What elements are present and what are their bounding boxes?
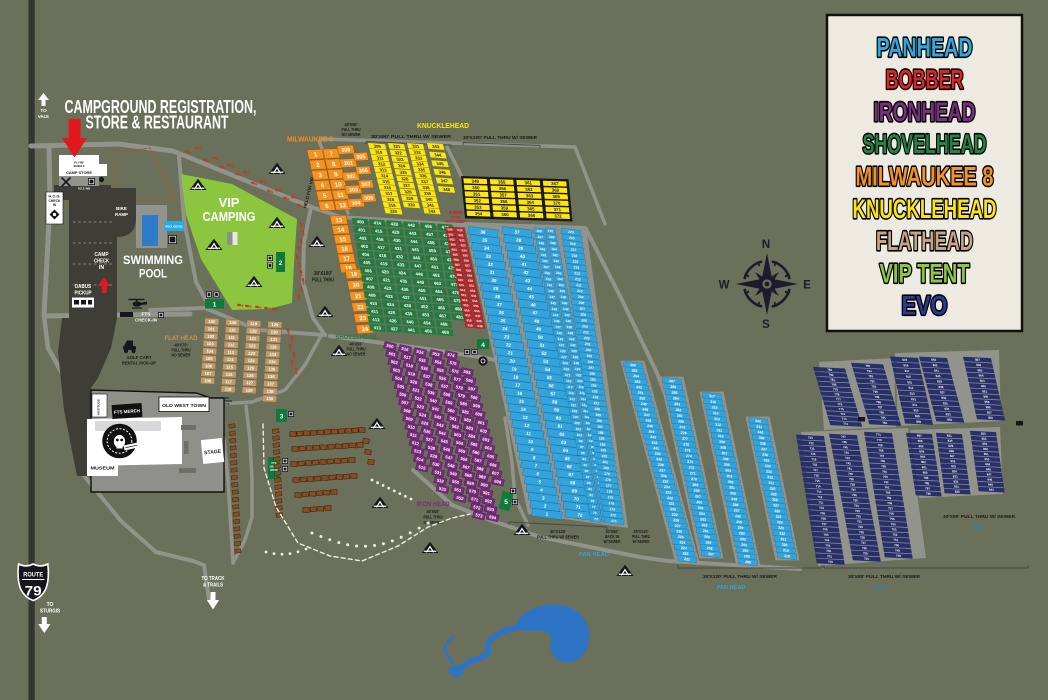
- svg-text:93: 93: [582, 457, 586, 461]
- svg-text:298: 298: [732, 503, 738, 508]
- svg-text:179: 179: [604, 472, 610, 477]
- svg-text:141: 141: [553, 313, 559, 318]
- svg-text:303: 303: [348, 187, 358, 193]
- svg-text:BIKE: BIKE: [116, 206, 128, 212]
- svg-text:327: 327: [773, 503, 779, 508]
- svg-text:POOLHOUSE: POOLHOUSE: [166, 225, 183, 229]
- svg-text:EVO: EVO: [902, 291, 948, 321]
- svg-text:CAMP: CAMP: [95, 252, 109, 258]
- svg-text:TO: TO: [40, 108, 47, 113]
- svg-text:PULL THRU: PULL THRU: [424, 515, 443, 520]
- svg-text:222: 222: [682, 551, 688, 556]
- svg-text:293: 293: [739, 531, 745, 536]
- svg-text:432: 432: [395, 254, 404, 259]
- svg-text:231: 231: [668, 502, 674, 507]
- svg-text:366: 366: [528, 213, 536, 218]
- svg-text:134: 134: [569, 337, 575, 342]
- svg-text:91: 91: [583, 463, 587, 467]
- svg-text:276: 276: [683, 442, 689, 447]
- svg-text:PAN HEAD: PAN HEAD: [717, 585, 746, 591]
- svg-text:320: 320: [781, 543, 787, 548]
- svg-text:VIP: VIP: [219, 196, 240, 210]
- svg-text:199: 199: [586, 354, 592, 359]
- svg-text:124: 124: [575, 367, 581, 372]
- svg-text:424: 424: [386, 302, 395, 307]
- svg-text:334: 334: [765, 464, 771, 469]
- svg-text:30'X120' PULL THRU W/ SEWER: 30'X120' PULL THRU W/ SEWER: [703, 574, 778, 579]
- svg-text:414: 414: [373, 220, 382, 225]
- svg-text:124: 124: [248, 358, 256, 363]
- svg-text:101: 101: [208, 326, 216, 331]
- svg-text:77: 77: [592, 505, 596, 509]
- svg-text:411: 411: [371, 309, 379, 314]
- svg-text:30'X80' PULL THRU W/ SEWER: 30'X80' PULL THRU W/ SEWER: [943, 514, 1016, 519]
- svg-text:207: 207: [579, 307, 585, 312]
- svg-text:127: 127: [561, 355, 567, 360]
- svg-text:RENTAL PICK-UP: RENTAL PICK-UP: [122, 361, 156, 366]
- svg-text:169: 169: [536, 229, 542, 234]
- svg-text:193: 193: [592, 389, 598, 394]
- svg-text:127: 127: [246, 380, 254, 385]
- svg-text:282: 282: [675, 408, 681, 413]
- svg-text:241: 241: [653, 446, 659, 451]
- svg-text:221: 221: [684, 557, 690, 562]
- svg-text:456: 456: [424, 224, 433, 229]
- svg-text:261: 261: [703, 529, 709, 534]
- svg-text:174: 174: [608, 501, 614, 506]
- svg-text:358: 358: [500, 199, 508, 204]
- svg-text:429: 429: [392, 230, 401, 235]
- svg-text:330: 330: [769, 487, 775, 492]
- svg-text:277: 277: [682, 437, 688, 442]
- svg-text:131: 131: [270, 337, 278, 342]
- svg-text:95: 95: [581, 451, 585, 455]
- svg-text:314: 314: [713, 411, 719, 416]
- svg-text:278: 278: [681, 431, 687, 436]
- svg-text:115: 115: [226, 364, 234, 369]
- svg-text:99: 99: [579, 439, 583, 443]
- svg-text:97: 97: [580, 445, 584, 449]
- svg-text:89: 89: [584, 469, 588, 473]
- svg-text:251: 251: [638, 391, 644, 396]
- svg-text:258: 258: [707, 546, 713, 551]
- svg-text:408: 408: [367, 284, 376, 289]
- svg-text:CHECK: CHECK: [94, 258, 109, 264]
- svg-text:121: 121: [249, 336, 257, 341]
- svg-text:3: 3: [280, 414, 284, 421]
- svg-text:79: 79: [25, 583, 42, 599]
- svg-text:122: 122: [249, 343, 257, 348]
- svg-text:218: 218: [570, 242, 576, 247]
- svg-text:419: 419: [380, 261, 389, 266]
- svg-text:245: 245: [647, 424, 653, 429]
- svg-text:111: 111: [228, 335, 236, 340]
- svg-text:317: 317: [709, 394, 715, 399]
- svg-text:105: 105: [206, 356, 214, 361]
- svg-text:301: 301: [343, 161, 353, 167]
- svg-text:OLD WEST TOWN: OLD WEST TOWN: [162, 403, 207, 408]
- svg-text:338: 338: [760, 442, 766, 447]
- svg-text:296: 296: [735, 514, 741, 519]
- svg-text:302: 302: [727, 480, 733, 485]
- svg-text:BOBBER: BOBBER: [449, 210, 463, 215]
- svg-text:223: 223: [681, 546, 687, 551]
- svg-text:125: 125: [247, 365, 255, 370]
- svg-text:400: 400: [356, 219, 365, 224]
- svg-text:MILWAUKEE 8: MILWAUKEE 8: [856, 162, 994, 192]
- svg-text:117: 117: [567, 385, 573, 390]
- svg-text:194: 194: [591, 383, 597, 388]
- svg-text:79: 79: [590, 499, 594, 503]
- svg-text:151: 151: [547, 283, 553, 288]
- svg-text:448: 448: [415, 271, 424, 276]
- svg-text:4: 4: [481, 342, 485, 349]
- svg-text:110: 110: [229, 327, 237, 332]
- svg-text:178: 178: [605, 478, 611, 483]
- svg-text:333: 333: [766, 470, 772, 475]
- svg-text:309: 309: [719, 440, 725, 445]
- svg-text:KNUCKLEHEAD: KNUCKLEHEAD: [853, 194, 997, 224]
- svg-text:291: 291: [741, 543, 747, 548]
- svg-text:CHECK-IN: CHECK-IN: [135, 318, 158, 324]
- svg-text:349: 349: [471, 179, 479, 184]
- svg-text:451: 451: [419, 296, 428, 301]
- svg-text:143: 143: [551, 307, 557, 312]
- svg-text:464: 464: [435, 289, 444, 294]
- svg-text:308: 308: [720, 446, 726, 451]
- svg-text:PICKUP: PICKUP: [75, 290, 92, 296]
- svg-text:132: 132: [570, 343, 576, 348]
- svg-text:109: 109: [229, 320, 237, 325]
- svg-text:E: E: [803, 280, 811, 292]
- svg-text:351: 351: [473, 192, 481, 197]
- svg-text:GOLF CART: GOLF CART: [127, 355, 152, 360]
- svg-text:PULL THRU W/ SEWER: PULL THRU W/ SEWER: [537, 535, 580, 540]
- svg-text:269: 269: [692, 483, 698, 488]
- svg-text:307: 307: [361, 182, 371, 188]
- svg-text:188: 188: [596, 419, 602, 424]
- svg-text:103: 103: [207, 341, 215, 346]
- svg-text:357: 357: [499, 192, 507, 197]
- svg-text:283: 283: [674, 402, 680, 407]
- svg-text:159: 159: [542, 259, 548, 264]
- svg-text:460: 460: [429, 256, 438, 261]
- svg-text:CAMPING: CAMPING: [203, 210, 256, 224]
- svg-text:1: 1: [213, 302, 217, 309]
- svg-text:342: 342: [755, 419, 761, 424]
- svg-text:259: 259: [705, 540, 711, 545]
- svg-text:274: 274: [686, 454, 692, 459]
- svg-text:263: 263: [700, 517, 706, 522]
- svg-text:108: 108: [204, 378, 212, 383]
- svg-text:224: 224: [679, 540, 685, 545]
- svg-text:364: 364: [526, 200, 534, 205]
- svg-text:ROUTE: ROUTE: [23, 573, 43, 579]
- svg-text:121: 121: [564, 373, 570, 378]
- svg-text:307: 307: [721, 451, 727, 456]
- svg-text:211: 211: [576, 283, 582, 288]
- svg-text:155: 155: [544, 271, 550, 276]
- svg-text:180: 180: [603, 466, 609, 471]
- svg-text:360: 360: [501, 212, 509, 217]
- svg-text:403: 403: [360, 244, 369, 249]
- svg-text:118: 118: [578, 385, 584, 390]
- svg-text:234: 234: [664, 485, 670, 490]
- svg-text:281: 281: [677, 414, 683, 419]
- svg-text:219: 219: [569, 236, 575, 241]
- svg-text:365: 365: [527, 206, 535, 211]
- svg-text:168: 168: [549, 235, 555, 240]
- svg-text:173: 173: [609, 507, 615, 512]
- svg-text:203: 203: [583, 330, 589, 335]
- svg-text:421: 421: [382, 277, 391, 282]
- svg-text:120: 120: [577, 379, 583, 384]
- svg-text:185: 185: [599, 436, 605, 441]
- svg-text:149: 149: [548, 289, 554, 294]
- svg-text:466: 466: [437, 305, 446, 310]
- svg-text:335: 335: [763, 458, 769, 463]
- svg-text:438: 438: [403, 303, 412, 308]
- svg-text:NO SEWER: NO SEWER: [342, 132, 361, 137]
- svg-text:254: 254: [633, 374, 639, 379]
- svg-text:STORE & RESTAURANT: STORE & RESTAURANT: [86, 113, 229, 133]
- svg-text:287: 287: [669, 379, 675, 384]
- svg-text:123: 123: [563, 367, 569, 372]
- svg-text:295: 295: [736, 520, 742, 525]
- svg-text:352: 352: [473, 198, 481, 203]
- svg-text:354: 354: [475, 211, 483, 216]
- svg-text:N: N: [762, 239, 770, 251]
- svg-text:TO TRACK: TO TRACK: [202, 576, 225, 582]
- svg-text:205: 205: [581, 318, 587, 323]
- svg-text:137: 137: [267, 381, 275, 386]
- svg-text:216: 216: [571, 253, 577, 258]
- svg-text:166: 166: [550, 241, 556, 246]
- svg-text:315: 315: [711, 405, 717, 410]
- svg-text:136: 136: [267, 374, 275, 379]
- svg-text:305: 305: [724, 463, 730, 468]
- svg-text:EVO: EVO: [973, 525, 984, 531]
- svg-text:KNUCKLEHEAD: KNUCKLEHEAD: [417, 121, 470, 130]
- svg-text:434: 434: [398, 270, 407, 275]
- svg-text:455: 455: [424, 328, 433, 333]
- svg-text:85: 85: [587, 481, 591, 485]
- svg-text:260: 260: [704, 535, 710, 540]
- svg-text:250: 250: [639, 396, 645, 401]
- svg-text:30'X80' PULL THRU W/ SEWER: 30'X80' PULL THRU W/ SEWER: [848, 574, 921, 579]
- svg-text:372: 372: [554, 214, 562, 219]
- svg-text:183: 183: [600, 448, 606, 453]
- svg-text:285: 285: [671, 391, 677, 396]
- svg-text:240: 240: [655, 452, 661, 457]
- svg-text:S: S: [762, 319, 770, 331]
- svg-text:435: 435: [399, 278, 408, 283]
- svg-text:208: 208: [578, 301, 584, 306]
- svg-text:83: 83: [588, 487, 592, 491]
- svg-text:172: 172: [610, 513, 616, 518]
- svg-text:319: 319: [783, 548, 789, 553]
- svg-text:BACK IN W/SEWER: BACK IN W/SEWER: [445, 220, 468, 224]
- svg-text:BOBBER: BOBBER: [886, 65, 964, 95]
- svg-text:73: 73: [594, 517, 598, 521]
- svg-text:325: 325: [775, 515, 781, 520]
- svg-text:167: 167: [537, 235, 543, 240]
- svg-text:115: 115: [568, 391, 574, 396]
- svg-text:181: 181: [602, 460, 608, 465]
- svg-text:142: 142: [564, 313, 570, 318]
- svg-text:290: 290: [742, 549, 748, 554]
- svg-text:467: 467: [439, 313, 448, 318]
- svg-text:404: 404: [361, 252, 370, 257]
- svg-text:FLATHEAD: FLATHEAD: [876, 226, 973, 256]
- svg-text:445: 445: [411, 247, 420, 252]
- svg-text:272: 272: [688, 466, 694, 471]
- svg-text:112: 112: [228, 342, 236, 347]
- svg-text:215: 215: [572, 259, 578, 264]
- svg-text:306: 306: [723, 457, 729, 462]
- svg-text:300: 300: [730, 491, 736, 496]
- svg-text:454: 454: [423, 320, 432, 325]
- svg-text:368: 368: [552, 188, 560, 193]
- svg-text:452: 452: [420, 304, 429, 309]
- svg-text:292: 292: [740, 537, 746, 542]
- svg-text:230: 230: [670, 507, 676, 512]
- svg-text:152: 152: [558, 283, 564, 288]
- svg-text:161: 161: [541, 253, 547, 258]
- svg-text:322: 322: [779, 532, 785, 537]
- svg-text:256: 256: [630, 363, 636, 368]
- svg-text:458: 458: [427, 240, 436, 245]
- svg-text:280: 280: [678, 419, 684, 424]
- svg-text:WHEELS: WHEELS: [74, 164, 85, 168]
- svg-text:139: 139: [554, 319, 560, 324]
- svg-text:355: 355: [498, 179, 506, 184]
- svg-text:102: 102: [207, 334, 215, 339]
- svg-text:405: 405: [363, 260, 372, 265]
- svg-text:439: 439: [405, 311, 414, 316]
- svg-text:122: 122: [576, 373, 582, 378]
- svg-text:248: 248: [642, 407, 648, 412]
- svg-text:DABUS: DABUS: [75, 284, 91, 290]
- svg-text:441: 441: [407, 327, 416, 332]
- svg-text:401: 401: [358, 227, 367, 232]
- svg-text:109: 109: [572, 409, 578, 414]
- svg-text:340: 340: [757, 430, 763, 435]
- svg-text:189: 189: [595, 413, 601, 418]
- svg-text:481: 481: [456, 314, 465, 319]
- svg-text:SWIMMING: SWIMMING: [123, 253, 183, 267]
- svg-text:226: 226: [676, 529, 682, 534]
- svg-text:459: 459: [428, 248, 437, 253]
- svg-text:450: 450: [418, 288, 427, 293]
- svg-text:150: 150: [559, 289, 565, 294]
- svg-text:265: 265: [697, 506, 703, 511]
- svg-text:324: 324: [777, 520, 783, 525]
- svg-text:426: 426: [389, 318, 398, 323]
- svg-text:CAMP STORE: CAMP STORE: [66, 171, 92, 175]
- svg-text:369: 369: [552, 194, 560, 199]
- svg-text:299: 299: [731, 497, 737, 502]
- svg-text:R.E.S. INN: R.E.S. INN: [78, 188, 90, 191]
- svg-text:412: 412: [372, 317, 381, 322]
- svg-text:111: 111: [571, 403, 577, 408]
- svg-text:154: 154: [557, 277, 563, 282]
- svg-text:187: 187: [597, 425, 603, 430]
- svg-text:367: 367: [551, 181, 559, 186]
- svg-text:237: 237: [659, 468, 665, 473]
- svg-text:113: 113: [227, 350, 235, 355]
- svg-text:120: 120: [250, 328, 258, 333]
- svg-text:271: 271: [690, 471, 696, 476]
- svg-text:268: 268: [694, 489, 700, 494]
- svg-text:328: 328: [772, 498, 778, 503]
- svg-text:W/ SEWER: W/ SEWER: [604, 539, 621, 544]
- svg-text:119: 119: [566, 379, 572, 384]
- svg-text:30'X100': 30'X100': [314, 271, 332, 277]
- svg-text:306: 306: [358, 168, 368, 174]
- svg-text:177: 177: [606, 483, 612, 488]
- svg-text:156: 156: [556, 271, 562, 276]
- svg-text:266: 266: [696, 500, 702, 505]
- svg-text:175: 175: [607, 495, 613, 500]
- svg-text:201: 201: [585, 342, 591, 347]
- svg-text:148: 148: [560, 295, 566, 300]
- svg-text:139: 139: [266, 396, 274, 401]
- svg-text:214: 214: [573, 265, 579, 270]
- svg-text:370: 370: [553, 201, 561, 206]
- svg-text:136: 136: [567, 331, 573, 336]
- svg-text:147: 147: [549, 295, 555, 300]
- svg-text:443: 443: [409, 231, 418, 236]
- svg-text:198: 198: [587, 360, 593, 365]
- svg-text:107: 107: [204, 371, 212, 376]
- svg-text:105: 105: [574, 421, 580, 426]
- svg-text:336: 336: [762, 453, 768, 458]
- svg-text:W: W: [719, 280, 730, 292]
- svg-text:326: 326: [774, 509, 780, 514]
- svg-text:176: 176: [607, 489, 613, 494]
- svg-text:446: 446: [412, 255, 421, 260]
- svg-text:40'X55': 40'X55': [427, 509, 440, 514]
- svg-text:117: 117: [225, 379, 233, 384]
- svg-text:255: 255: [631, 369, 637, 374]
- svg-text:465: 465: [436, 297, 445, 302]
- svg-text:363: 363: [526, 193, 534, 198]
- svg-text:197: 197: [588, 366, 594, 371]
- svg-text:229: 229: [672, 513, 678, 518]
- svg-text:301: 301: [729, 486, 735, 491]
- svg-text:128: 128: [572, 355, 578, 360]
- svg-text:131: 131: [559, 343, 565, 348]
- svg-text:104: 104: [206, 348, 214, 353]
- svg-text:437: 437: [402, 295, 411, 300]
- svg-text:138: 138: [266, 389, 274, 394]
- svg-text:235: 235: [662, 479, 668, 484]
- svg-text:5: 5: [504, 499, 508, 506]
- svg-text:106: 106: [205, 363, 213, 368]
- svg-text:FTS: FTS: [141, 312, 151, 318]
- svg-text:305: 305: [356, 154, 366, 160]
- svg-text:STURGIS: STURGIS: [40, 608, 61, 614]
- svg-text:273: 273: [687, 460, 693, 465]
- svg-text:312: 312: [715, 423, 721, 428]
- svg-text:300: 300: [341, 147, 351, 153]
- svg-text:238: 238: [658, 463, 664, 468]
- svg-text:329: 329: [771, 492, 777, 497]
- svg-text:MUSEUM: MUSEUM: [91, 466, 115, 472]
- svg-text:NO SEWER: NO SEWER: [172, 353, 191, 358]
- svg-text:350: 350: [472, 185, 480, 190]
